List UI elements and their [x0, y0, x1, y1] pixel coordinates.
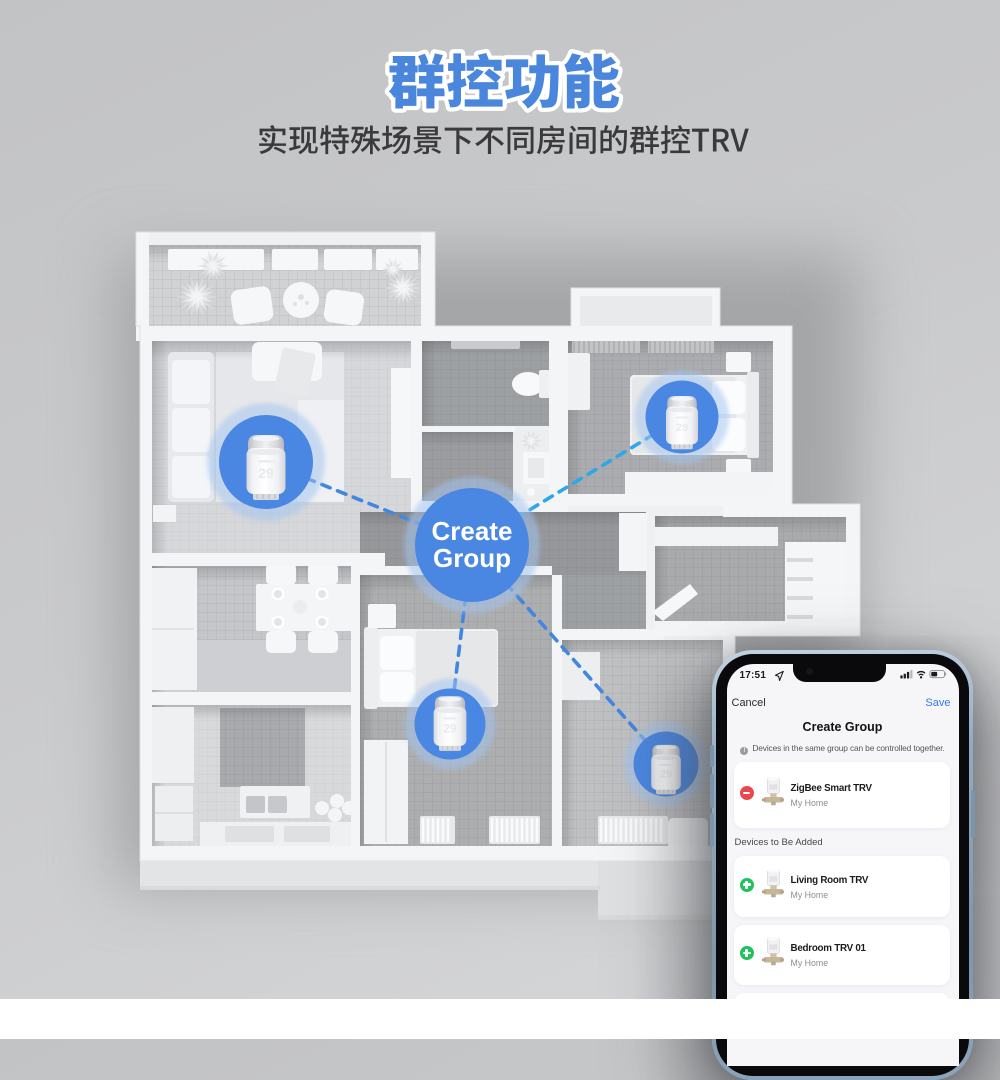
- svg-text:Create: Create: [432, 516, 513, 546]
- svg-text:Group: Group: [433, 543, 511, 573]
